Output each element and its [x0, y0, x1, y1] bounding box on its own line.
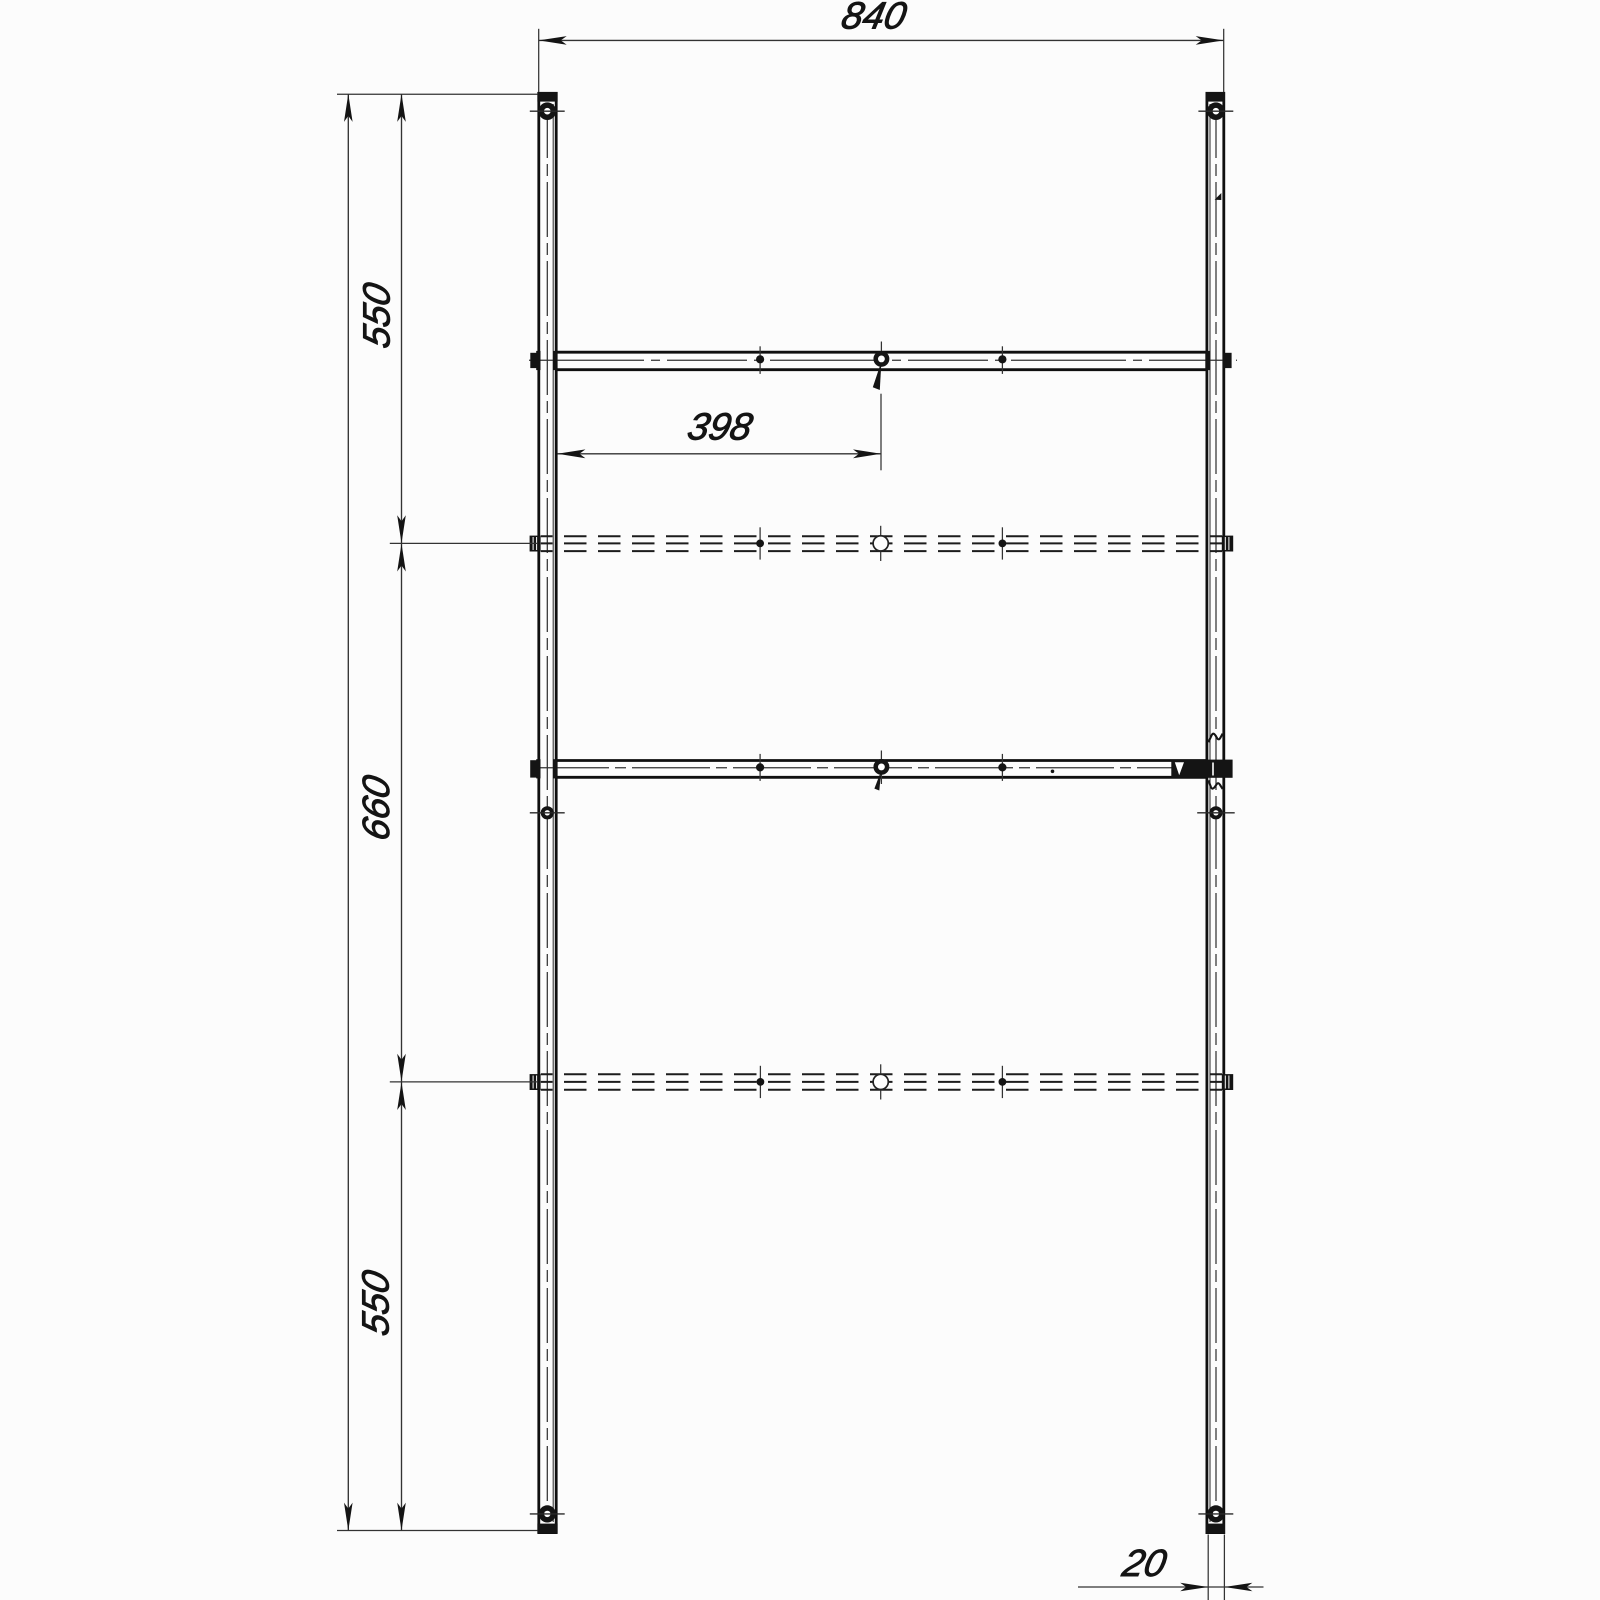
svg-text:20: 20 — [1118, 1542, 1171, 1585]
svg-text:550: 550 — [356, 279, 399, 352]
svg-text:660: 660 — [356, 771, 399, 844]
svg-text:550: 550 — [355, 1266, 398, 1339]
svg-text:840: 840 — [838, 0, 911, 37]
svg-text:398: 398 — [684, 406, 757, 449]
